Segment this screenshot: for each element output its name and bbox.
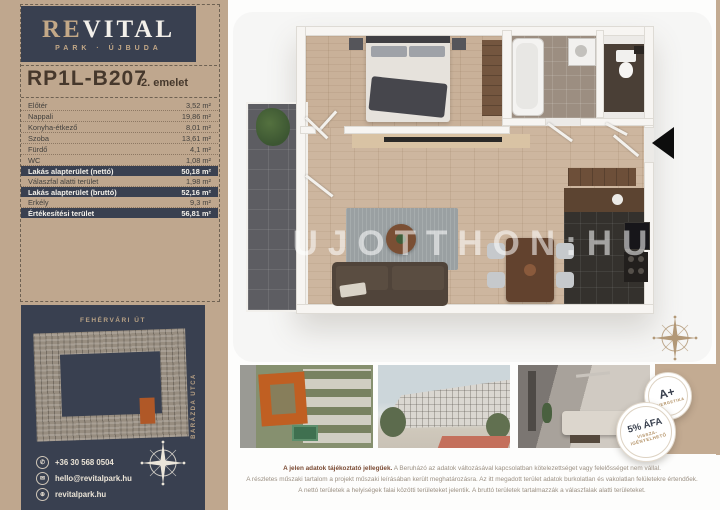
compass-rose-icon	[139, 439, 187, 487]
contact-phone: ✆ +36 30 568 0504	[36, 456, 114, 469]
wall-hall-top-b	[580, 118, 654, 126]
area-label: Erkély	[28, 198, 49, 207]
divider	[21, 97, 217, 98]
contact-email: ✉ hello@revitalpark.hu	[36, 472, 132, 485]
tv	[384, 137, 502, 142]
area-table: Előtér3,52 m² Nappali19,86 m² Konyha-étk…	[21, 100, 218, 218]
disclaimer-lead: A jelen adatok tájékoztató jellegűek.	[283, 465, 392, 472]
photo-tree	[380, 407, 406, 437]
wall-bedroom-bottom-b	[344, 126, 510, 134]
photo-building-render	[378, 365, 510, 448]
hall-cabinet	[568, 168, 636, 186]
contact-website: ⊕ revitalpark.hu	[36, 488, 106, 501]
table-row: Válaszfal alatti terület1,98 m²	[21, 176, 218, 187]
floor-label: 2. emelet	[141, 77, 188, 89]
area-value: 52,16 m²	[181, 188, 211, 197]
table-row: Nappali19,86 m²	[21, 111, 218, 122]
balcony-plant	[256, 108, 290, 146]
contact-website-text: revitalpark.hu	[55, 490, 106, 499]
photo-plant	[542, 403, 552, 423]
area-label: Értékesítési terület	[28, 209, 94, 218]
dining-chair	[487, 272, 505, 288]
wall-right-upper	[644, 26, 654, 128]
table-row: Előtér3,52 m²	[21, 100, 218, 111]
nightstand	[452, 38, 466, 50]
brand-tagline: PARK · ÚJBUDA	[55, 45, 162, 52]
phone-icon: ✆	[36, 456, 49, 469]
kitchen-sink	[612, 194, 623, 205]
vat-badge: 5% ÁFA VISSZA- IGÉNYELHETŐ	[616, 402, 676, 462]
wall-hall-top-a	[502, 118, 546, 126]
kitchen-counter	[564, 188, 644, 212]
table-row: Erkély9,3 m²	[21, 197, 218, 208]
brand-logo-vital: VITAL	[83, 16, 175, 43]
area-label: Szoba	[28, 134, 49, 143]
photo-tennis-court	[292, 425, 318, 441]
photo-ceiling-light	[576, 371, 610, 378]
disclaimer-line-1: A jelen adatok tájékoztató jellegűek. A …	[236, 463, 708, 474]
area-value: 4,1 m²	[190, 145, 211, 154]
table-row: Fürdő4,1 m²	[21, 144, 218, 155]
area-label: Fürdő	[28, 145, 47, 154]
area-value: 3,52 m²	[186, 101, 211, 110]
toilet-bowl	[619, 62, 633, 78]
site-map-highlighted-unit	[139, 397, 155, 424]
envelope-icon: ✉	[36, 472, 49, 485]
area-value: 50,18 m²	[181, 167, 211, 176]
wall-bathroom-wc	[596, 30, 604, 118]
brand-logo-text: REVITAL	[42, 17, 175, 42]
bathtub-inner	[516, 43, 538, 109]
area-label: Lakás alapterület (bruttó)	[28, 188, 117, 197]
area-label: Válaszfal alatti terület	[28, 177, 98, 186]
stove-burner	[638, 268, 644, 274]
site-panel: FEHÉRVÁRI ÚT BARÁZDA UTCA ✆ +36 30 568 0…	[21, 305, 205, 510]
street-label-right: BARÁZDA UTCA	[191, 371, 197, 441]
washing-machine-door	[575, 45, 587, 57]
wardrobe	[482, 40, 502, 116]
table-row-sales-area: Értékesítési terület56,81 m²	[21, 208, 218, 218]
area-value: 1,98 m²	[186, 177, 211, 186]
photo-coffee-table	[570, 435, 600, 443]
disclaimer: A jelen adatok tájékoztató jellegűek. A …	[236, 463, 708, 496]
globe-icon: ⊕	[36, 488, 49, 501]
area-value: 13,61 m²	[182, 134, 211, 143]
table-row: WC1,08 m²	[21, 155, 218, 166]
area-label: Nappali	[28, 112, 53, 121]
dining-chair	[556, 272, 574, 288]
area-label: WC	[28, 156, 40, 165]
unit-code: RP1L-B207	[27, 67, 147, 91]
wall-bedroom-bathroom	[502, 30, 512, 126]
disclaimer-line1-rest: A Beruházó az adatok változásával kapcso…	[392, 465, 661, 472]
site-map-building-ring	[33, 328, 189, 441]
contact-email-text: hello@revitalpark.hu	[55, 474, 132, 483]
table-row-net-area: Lakás alapterület (nettó)50,18 m²	[21, 166, 218, 176]
area-label: Lakás alapterület (nettó)	[28, 167, 113, 176]
stove-burner	[628, 268, 634, 274]
wall-left	[296, 26, 306, 314]
area-label: Előtér	[28, 101, 47, 110]
bed-pillow	[371, 46, 407, 57]
sofa-cushion	[392, 266, 444, 290]
table-row: Szoba13,61 m²	[21, 133, 218, 144]
brand-logo: REVITAL PARK · ÚJBUDA	[21, 6, 196, 62]
photo-street	[240, 365, 256, 448]
dining-centerpiece	[524, 264, 536, 276]
nightstand	[349, 38, 363, 50]
floorplan-compass-icon	[651, 314, 699, 362]
photo-bike-lane	[438, 436, 510, 448]
area-label: Konyha-étkező	[28, 123, 77, 132]
area-value: 19,86 m²	[182, 112, 211, 121]
area-value: 1,08 m²	[186, 156, 211, 165]
brand-logo-re: RE	[42, 16, 83, 43]
area-value: 9,3 m²	[190, 198, 211, 207]
toilet-tank	[616, 50, 636, 62]
photo-highlighted-building	[258, 371, 308, 426]
watermark: UJOTTHON:HU	[238, 224, 712, 264]
table-row-gross-area: Lakás alapterület (bruttó)52,16 m²	[21, 187, 218, 197]
wc-sink	[634, 46, 644, 54]
bed-pillow	[409, 46, 445, 57]
table-row: Konyha-étkező8,01 m²	[21, 122, 218, 133]
disclaimer-line-2: A részletes műszaki tartalom a projekt m…	[236, 474, 708, 485]
street-label-top: FEHÉRVÁRI ÚT	[21, 317, 205, 324]
area-value: 8,01 m²	[186, 123, 211, 132]
area-value: 56,81 m²	[181, 209, 211, 218]
contact-phone-text: +36 30 568 0504	[55, 458, 114, 467]
divider	[21, 65, 217, 66]
flyer-page: REVITAL PARK · ÚJBUDA RP1L-B207 2. emele…	[0, 0, 720, 510]
photo-window-frame	[528, 371, 536, 431]
photo-aerial-view	[240, 365, 373, 448]
disclaimer-line-3: A nettó területek a helyiségek falai köz…	[236, 485, 708, 496]
bed-headboard	[366, 36, 450, 43]
entrance-arrow-icon	[652, 127, 674, 159]
